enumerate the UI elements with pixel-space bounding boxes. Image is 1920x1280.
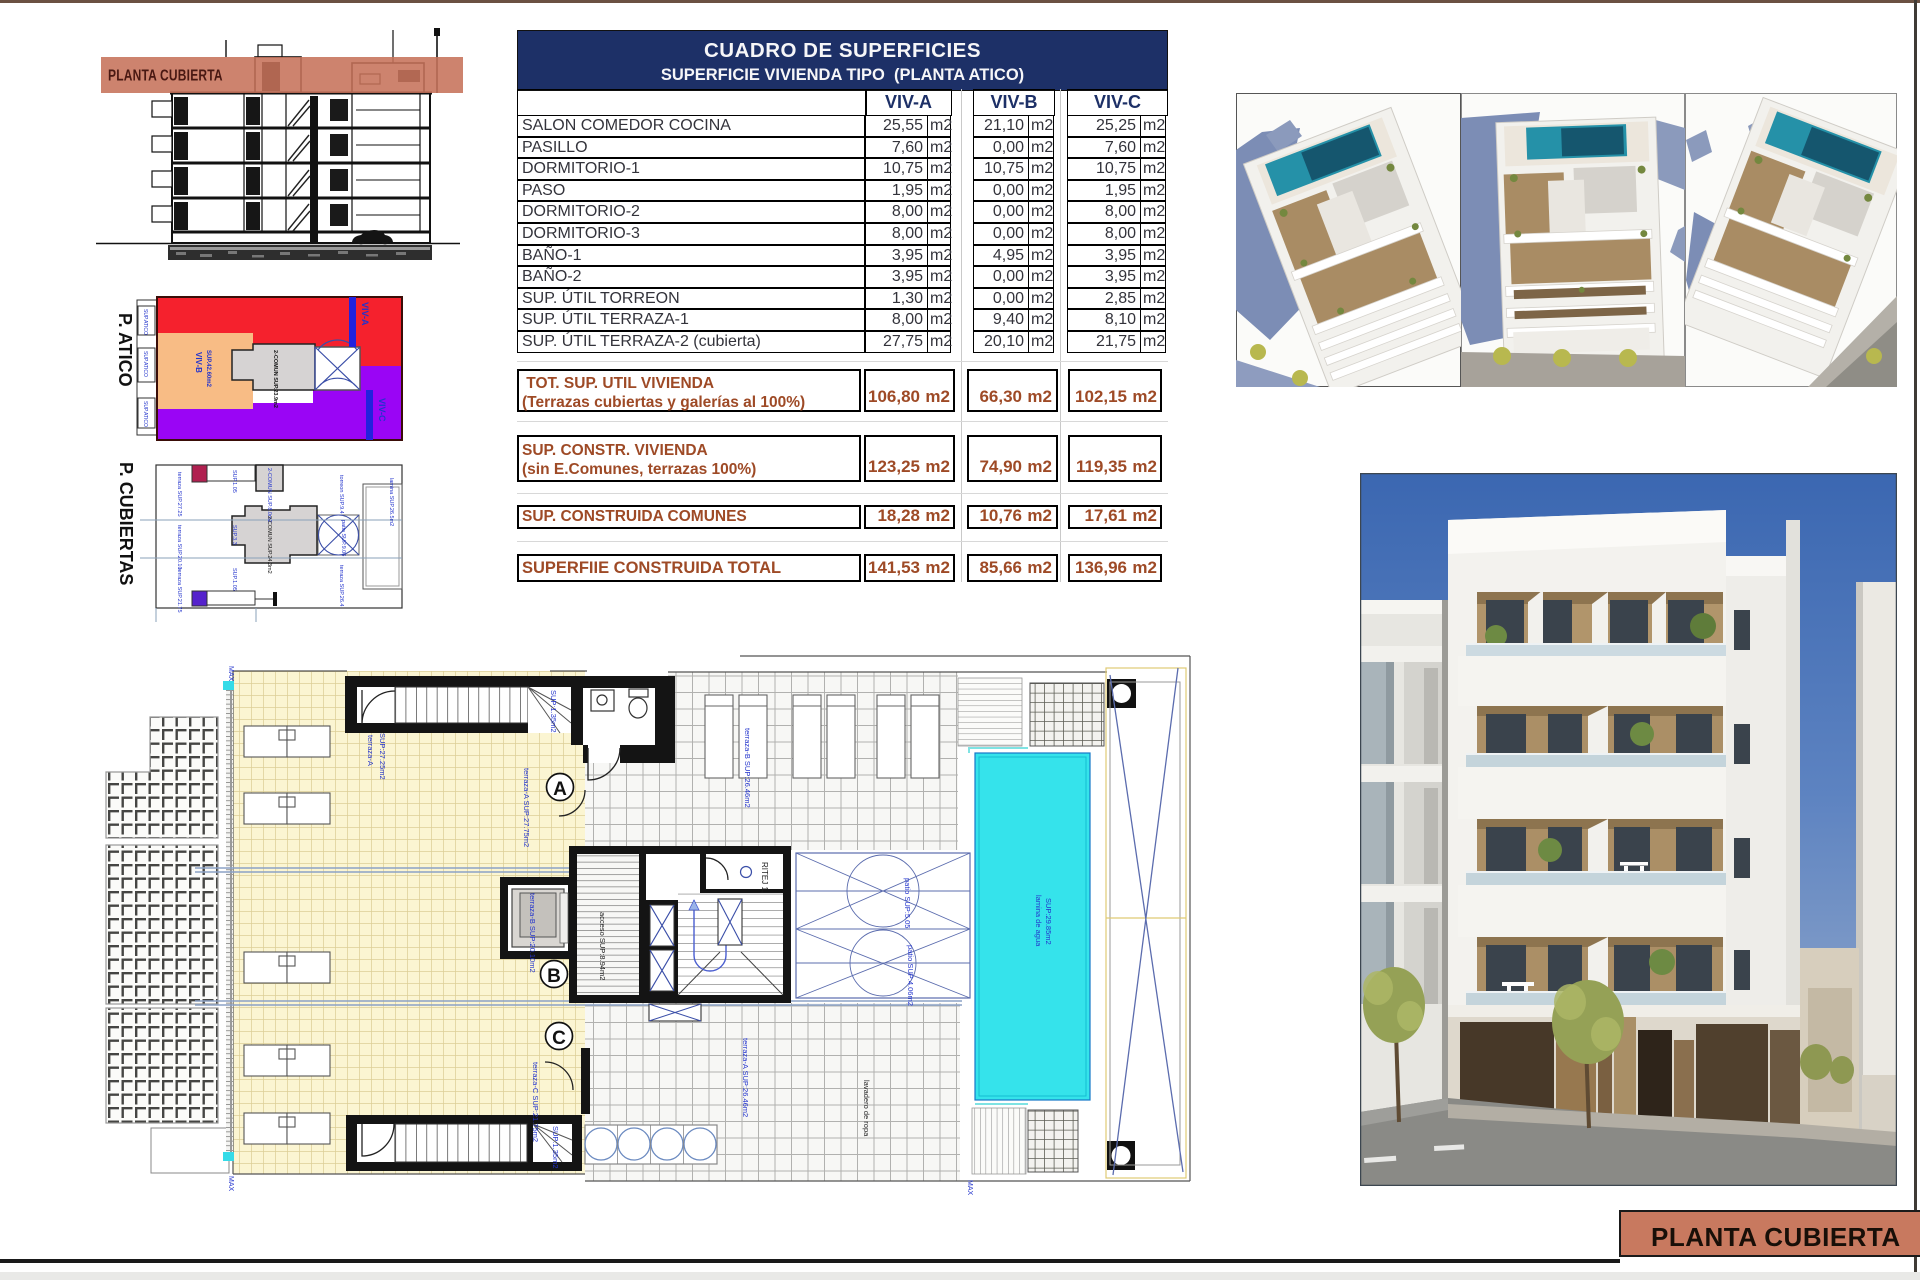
svg-text:terraza SUP.26.4: terraza SUP.26.4 <box>338 565 344 606</box>
svg-text:P. CUBIERTAS: P. CUBIERTAS <box>116 462 136 585</box>
svg-text:VIV-B: VIV-B <box>194 352 203 373</box>
svg-text:A: A <box>553 779 567 800</box>
svg-text:P. ATICO: P. ATICO <box>115 313 135 387</box>
svg-text:C: C <box>552 1028 566 1049</box>
svg-text:VIV-C: VIV-C <box>377 398 387 422</box>
svg-text:VIV-A: VIV-A <box>360 302 370 326</box>
svg-text:SUP:1.35m2: SUP:1.35m2 <box>549 690 558 733</box>
svg-text:terraza SUP.27.25: terraza SUP.27.25 <box>176 472 182 517</box>
svg-text:terraza-A: terraza-A <box>366 735 375 766</box>
svg-text:torreon SUP.9.4: torreon SUP.9.4 <box>338 475 344 514</box>
svg-text:SUP.ATICO: SUP.ATICO <box>142 401 148 427</box>
svg-text:acceso SUP:8.94m2: acceso SUP:8.94m2 <box>598 912 607 980</box>
svg-text:terraza-A SUP:26.46m2: terraza-A SUP:26.46m2 <box>741 1038 750 1117</box>
svg-text:SUP.42.60m2: SUP.42.60m2 <box>205 350 211 388</box>
svg-text:SUP:1.35m2: SUP:1.35m2 <box>551 1126 560 1169</box>
svg-text:terraza-A SUP:27.75m2: terraza-A SUP:27.75m2 <box>522 768 531 847</box>
svg-text:terraza SUP.20.10: terraza SUP.20.10 <box>176 525 182 570</box>
svg-text:SUP.1.05: SUP.1.05 <box>231 568 237 591</box>
svg-text:patio SUP.9.06: patio SUP.9.06 <box>340 520 346 556</box>
svg-text:terraza-C SUP:21.75m2: terraza-C SUP:21.75m2 <box>531 1062 540 1142</box>
svg-text:terraza SUP.21.75: terraza SUP.21.75 <box>176 568 182 613</box>
svg-text:MAX: MAX <box>966 1180 973 1196</box>
svg-text:MAX: MAX <box>227 1176 234 1192</box>
svg-text:SUP.ATICO: SUP.ATICO <box>142 309 148 335</box>
svg-text:SUP.ATICO: SUP.ATICO <box>142 351 148 377</box>
svg-text:lavadero de ropa: lavadero de ropa <box>862 1080 871 1137</box>
svg-text:terraza-B SUP:26.46m2: terraza-B SUP:26.46m2 <box>743 728 752 808</box>
svg-text:2-COMUN SUP.24.3m2: 2-COMUN SUP.24.3m2 <box>266 516 272 574</box>
svg-text:2-COMUN SUP.8.0m2: 2-COMUN SUP.8.0m2 <box>266 468 272 523</box>
svg-text:terraza-B SUP:20.10m2: terraza-B SUP:20.10m2 <box>528 893 537 973</box>
svg-text:SUP:29.85m2: SUP:29.85m2 <box>1044 898 1053 945</box>
svg-text:B: B <box>547 966 561 987</box>
svg-text:SUP.3.3: SUP.3.3 <box>231 525 237 545</box>
svg-text:patio SUP:4.06m2: patio SUP:4.06m2 <box>906 945 915 1006</box>
svg-text:patio SUP:5.05: patio SUP:5.05 <box>903 878 912 928</box>
svg-text:SUP.1.05: SUP.1.05 <box>231 470 237 493</box>
svg-text:MAX: MAX <box>227 666 234 682</box>
svg-text:SUP:27.25m2: SUP:27.25m2 <box>378 733 387 780</box>
svg-text:2-COMUN SUP.23.9m2: 2-COMUN SUP.23.9m2 <box>272 350 278 408</box>
svg-text:lamina de agua: lamina de agua <box>1034 895 1043 947</box>
svg-text:lamina SUP.26.5m2: lamina SUP.26.5m2 <box>388 478 394 526</box>
